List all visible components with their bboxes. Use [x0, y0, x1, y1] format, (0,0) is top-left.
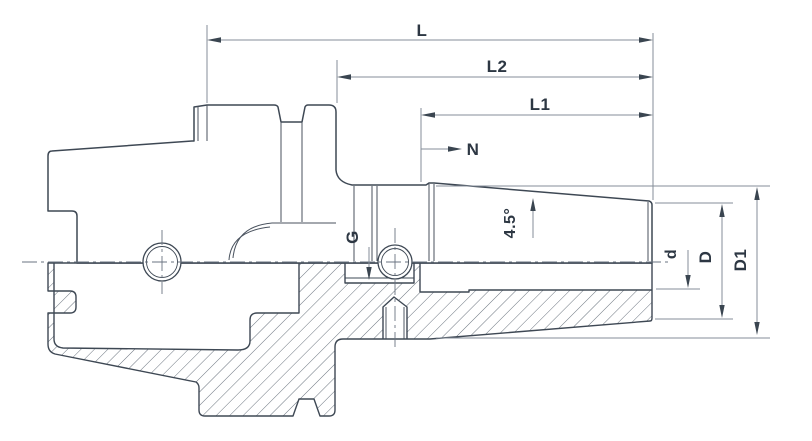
dimension-label-l: L — [417, 21, 428, 40]
section-hatch-region — [48, 263, 652, 416]
dimension-label-taper-angle: 4.5° — [502, 208, 519, 239]
dimension-label-d1: D1 — [731, 249, 750, 272]
dimension-label-big-d: D — [696, 251, 715, 264]
dimension-label-l1: L1 — [530, 95, 551, 114]
tool-holder-drawing: L L2 L1 N G 4.5° d D D1 — [0, 0, 812, 441]
dimension-label-l2: L2 — [487, 57, 508, 76]
technical-drawing-canvas: L L2 L1 N G 4.5° d D D1 — [0, 0, 812, 441]
dimension-label-d: d — [663, 249, 680, 259]
section-lower-half — [48, 263, 652, 416]
dimension-label-g: G — [343, 230, 362, 244]
dimension-label-n: N — [467, 140, 480, 159]
